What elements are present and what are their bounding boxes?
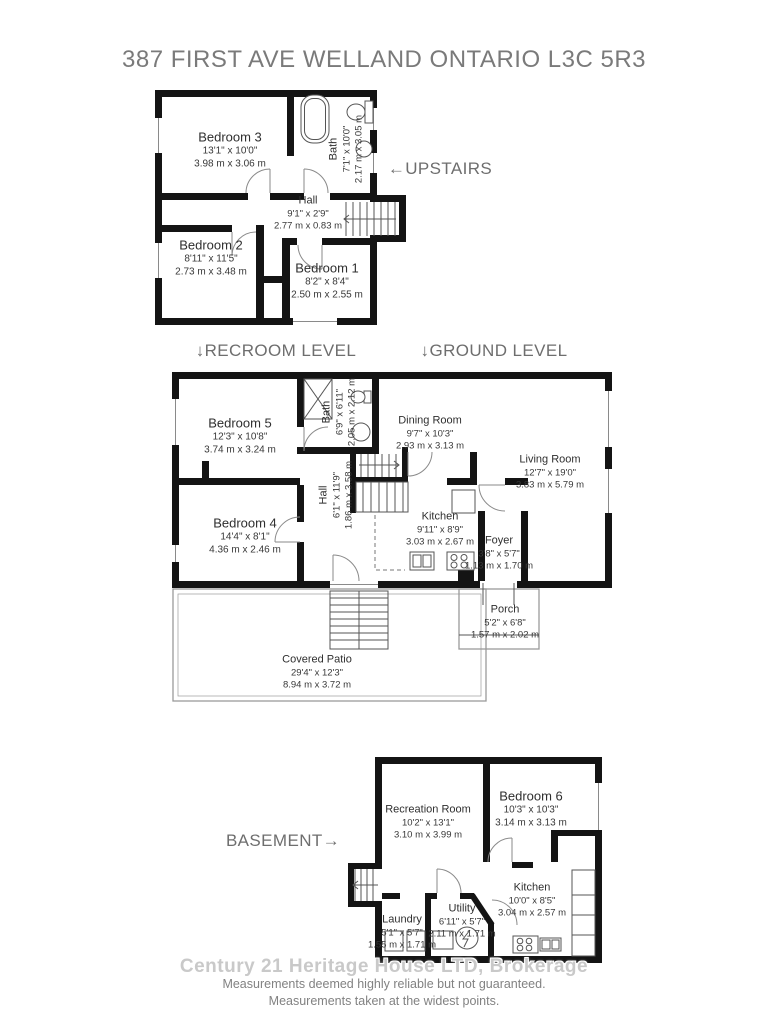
- recroom-level-label: ↓RECROOM LEVEL: [196, 341, 357, 361]
- room-label-bedroom-6: Bedroom 6 10'3" x 10'3" 3.14 m x 3.13 m: [495, 788, 567, 829]
- room-label-bedroom-3: Bedroom 3 13'1" x 10'0" 3.98 m x 3.06 m: [194, 129, 266, 170]
- basement-stove-icon: [513, 936, 538, 953]
- room-label-kitchen-basement: Kitchen 10'0" x 8'5" 3.04 m x 2.57 m: [498, 881, 566, 919]
- room-label-bath-main: Bath 6'9" x 6'11" 2.05 m x 2.12 m: [320, 378, 358, 446]
- page-title: 387 FIRST AVE WELLAND ONTARIO L3C 5R3: [0, 46, 768, 74]
- room-label-covered-patio: Covered Patio 29'4" x 12'3" 8.94 m x 3.7…: [282, 653, 352, 691]
- room-label-kitchen-main: Kitchen 9'11" x 8'9" 3.03 m x 2.67 m: [406, 510, 474, 548]
- basement-sink-icon: [540, 938, 561, 951]
- room-label-hall-main: Hall 6'1" x 11'9" 1.86 m x 3.58 m: [317, 461, 355, 529]
- brokerage-watermark: Century 21 Heritage House LTD, Brokerage: [0, 956, 768, 978]
- stairs-icon: [344, 202, 396, 236]
- room-label-dining-room: Dining Room 9'7" x 10'3" 2.93 m x 3.13 m: [396, 414, 464, 452]
- room-label-recreation-room: Recreation Room 10'2" x 13'1" 3.10 m x 3…: [385, 803, 471, 841]
- room-label-bedroom-5: Bedroom 5 12'3" x 10'8" 3.74 m x 3.24 m: [204, 415, 276, 456]
- upstairs-label: ←UPSTAIRS: [388, 159, 492, 179]
- kitchen-sink-icon: [410, 552, 434, 570]
- room-label-foyer: Foyer 3'8" x 5'7" 1.13 m x 1.70 m: [465, 534, 533, 572]
- room-label-porch: Porch 5'2" x 6'8" 1.57 m x 2.02 m: [471, 603, 539, 641]
- room-label-hall-upstairs: Hall 9'1" x 2'9" 2.77 m x 0.83 m: [274, 194, 342, 232]
- room-label-laundry: Laundry 5'1" x 5'7" 1.55 m x 1.71 m: [368, 913, 436, 951]
- disclaimer-line-2: Measurements taken at the widest points.: [0, 994, 768, 1008]
- floorplan-page: 387 FIRST AVE WELLAND ONTARIO L3C 5R3: [0, 0, 768, 1024]
- disclaimer-line-1: Measurements deemed highly reliable but …: [0, 977, 768, 991]
- room-label-bedroom-1: Bedroom 1 8'2" x 8'4" 2.50 m x 2.55 m: [291, 260, 363, 301]
- basement-kitchen-counter: [572, 870, 595, 956]
- stairs-icon-main: [356, 454, 408, 512]
- room-label-living-room: Living Room 12'7" x 19'0" 3.83 m x 5.79 …: [516, 453, 584, 491]
- room-label-bedroom-4: Bedroom 4 14'4" x 8'1" 4.36 m x 2.46 m: [209, 515, 281, 556]
- room-label-bedroom-2: Bedroom 2 8'11" x 11'5" 2.73 m x 3.48 m: [175, 237, 247, 278]
- kitchen-counter: [375, 515, 405, 570]
- room-label-utility: Utility 6'11" x 5'7" 2.11 m x 1.71 m: [428, 902, 495, 940]
- bathtub-icon: [301, 95, 329, 143]
- basement-label: BASEMENT→: [226, 831, 340, 851]
- basement-stairs-icon: [353, 869, 378, 901]
- patio-stairs-icon: [330, 591, 388, 649]
- room-label-bath-upstairs: Bath 7'1" x 10'0" 2.17 m x 3.05 m: [327, 115, 365, 183]
- ground-level-label: ↓GROUND LEVEL: [421, 341, 568, 361]
